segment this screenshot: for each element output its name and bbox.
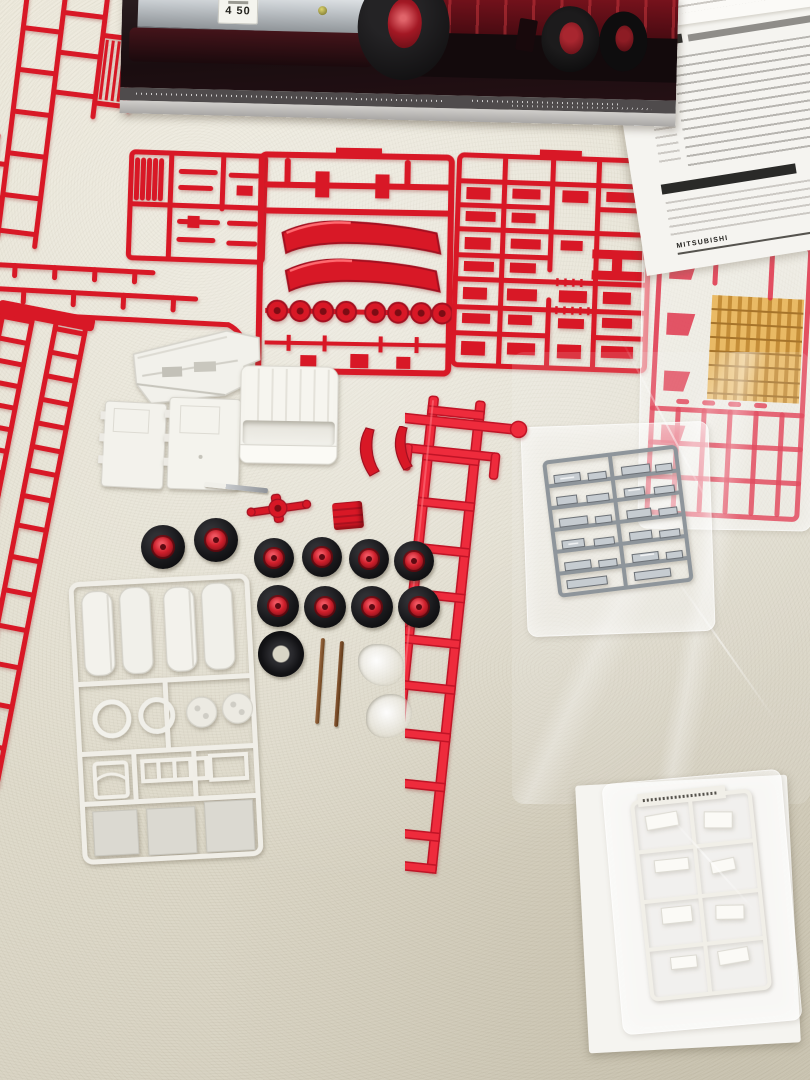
red-bracket-right [395,426,412,470]
air-tank-parts [81,582,235,676]
wheel-3 [254,538,294,578]
wheel-5 [349,539,389,579]
sprue-center-small [124,146,270,271]
clear-parts-cluster-1 [358,644,404,686]
wheel-9-hub [361,596,384,619]
wheel-5-hub-center [366,556,372,562]
box-fineprint-text-left [136,93,446,103]
cab-shell [239,365,339,465]
wheel-2-hub [204,528,228,552]
hubcap-row [265,300,452,323]
wheel-8-hub [314,596,337,619]
ring-and-drum-parts [94,693,254,737]
axle-rod-2 [334,641,344,727]
wheel-7-hub [267,595,290,618]
chassis-frame-body [405,392,529,878]
door-panel-right-handle-dot [198,455,202,459]
axle-rod-1 [315,638,325,724]
wheel-4-hub-center [319,554,325,560]
red-lever-shape [245,490,312,527]
wheel-10 [398,586,440,628]
wheel-8 [304,586,346,628]
wheel-10-hub [408,596,431,619]
cab-roof-ribs [245,368,334,422]
wheel-1 [141,525,185,569]
cab-front-lip [240,444,336,465]
door-panel-left [101,400,167,489]
white-sprue-bagged [625,780,779,1011]
wheel-2 [194,518,238,562]
wheel-5-hub [358,548,380,570]
bare-tire [258,631,304,677]
wheel-3-hub-center [271,555,277,561]
wheel-6 [394,541,434,581]
wheel-6-hub [403,550,425,572]
wheel-1-hub [151,535,175,559]
wheel-7 [257,585,299,627]
white-sprue-tanks [64,567,269,872]
wheel-1-hub-center [160,544,167,551]
wheel-10-hub-center [416,604,422,610]
bumper-red-reflection [129,27,374,67]
sprue-center-small-frame [128,152,266,263]
wheel-4-hub [311,546,333,568]
license-plate-number: 4 50 [218,6,258,18]
box-photo: 4 50 [120,0,678,101]
sprue-right-dense [446,146,659,381]
wheel-2-hub-center [213,537,220,544]
door-panel-right [166,397,241,491]
box-lid: 4 50 [119,0,678,127]
red-box-part [332,501,364,531]
door-panel-left-window-line [113,408,150,434]
door-panel-right-hinge-tabs [163,410,170,474]
flat-panel-parts [93,800,255,858]
instruction-text-block-1 [671,34,810,168]
wheel-6-hub-center [411,558,417,564]
cab-windshield-band [242,420,334,446]
photo-scene: MITSUBISHI 4 50 [0,0,810,1080]
wheel-8-hub-center [322,604,328,610]
license-plate-prefecture-line [228,1,248,4]
red-bracket-parts [354,426,422,482]
box-fineprint-text-right [472,100,622,106]
red-bracket-left [360,428,379,476]
wheel-9-hub-center [369,604,375,610]
license-plate: 4 50 [218,0,259,25]
chassis-frame [405,378,570,883]
fender-sprue-bottom-bits [264,334,447,369]
wheel-9 [351,586,393,628]
fender-parts [282,220,441,293]
wheel-7-hub-center [275,603,281,609]
wheel-3-hub [263,547,285,569]
frame-bracket-parts [94,754,248,798]
sprue-center-fenders [254,146,458,381]
door-panel-right-window-line [179,405,220,434]
wheel-4 [302,537,342,577]
